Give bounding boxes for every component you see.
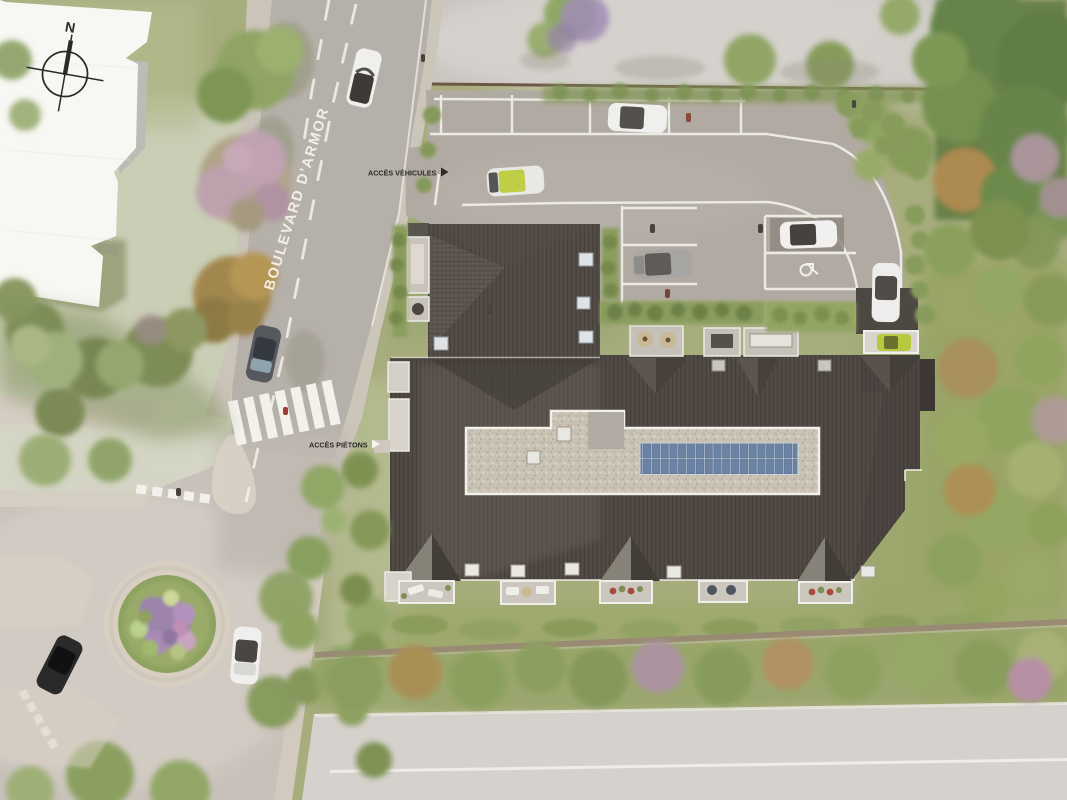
svg-text:ACCÈS PIÉTONS: ACCÈS PIÉTONS xyxy=(309,441,368,450)
svg-text:ACCÈS VÉHICULES: ACCÈS VÉHICULES xyxy=(368,169,436,178)
